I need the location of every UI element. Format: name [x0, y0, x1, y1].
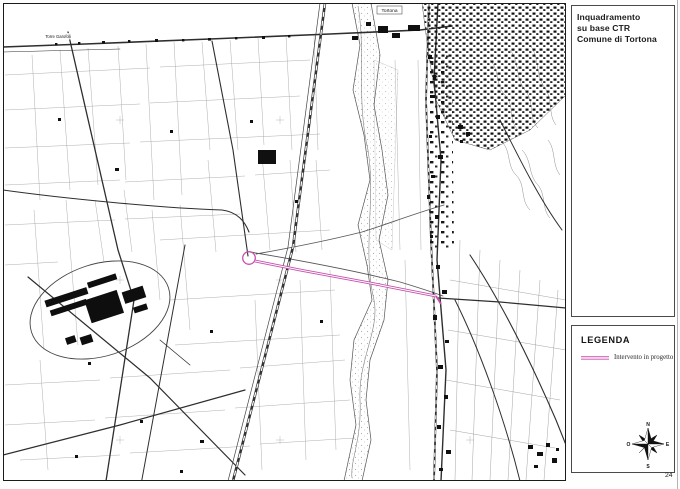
title-line-3: Comune di Tortona: [577, 34, 669, 45]
legend-title: LEGENDA: [581, 335, 674, 345]
page-number: 24: [665, 472, 673, 479]
scan-edge-line: [677, 0, 678, 489]
legend-line-sample: [581, 356, 609, 360]
large-building: [258, 150, 276, 164]
page: Tortona Torre Garofoli Inquadramento su …: [0, 0, 680, 489]
title-box: Inquadramento su base CTR Comune di Tort…: [571, 5, 675, 317]
map-label-city: Tortona: [382, 8, 398, 14]
map-frame: Tortona Torre Garofoli: [3, 3, 566, 481]
ctr-map: Tortona Torre Garofoli: [3, 3, 566, 481]
compass-east-label: E: [666, 442, 670, 448]
compass-south-label: S: [646, 464, 650, 469]
compass-west-label: O: [627, 442, 631, 448]
title-line-2: su base CTR: [577, 23, 669, 34]
compass-north-label: N: [646, 422, 650, 428]
map-label-locality: Torre Garofoli: [45, 34, 70, 39]
compass-rose: N S E O: [626, 421, 670, 469]
legend-item: Intervento in progetto: [581, 354, 674, 361]
legend-item-label: Intervento in progetto: [614, 354, 673, 361]
title-line-1: Inquadramento: [577, 12, 669, 23]
